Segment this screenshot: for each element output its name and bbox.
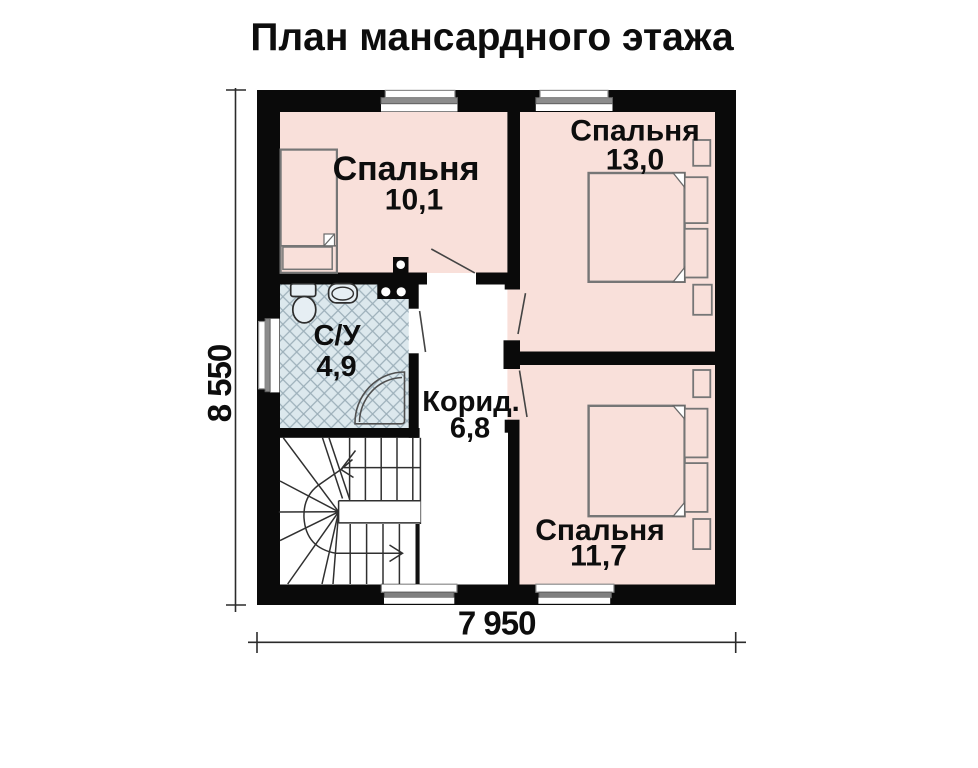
svg-text:4,9: 4,9 [316,351,356,383]
svg-text:11,7: 11,7 [570,540,627,573]
svg-text:С/У: С/У [313,320,361,352]
svg-text:6,8: 6,8 [450,413,490,445]
svg-text:7 950: 7 950 [458,604,536,641]
svg-text:План мансардного этажа: План мансардного этажа [250,16,734,59]
svg-text:10,1: 10,1 [385,184,443,217]
svg-text:13,0: 13,0 [606,144,664,177]
svg-text:Спальня: Спальня [333,150,480,188]
svg-text:8 550: 8 550 [201,345,238,423]
